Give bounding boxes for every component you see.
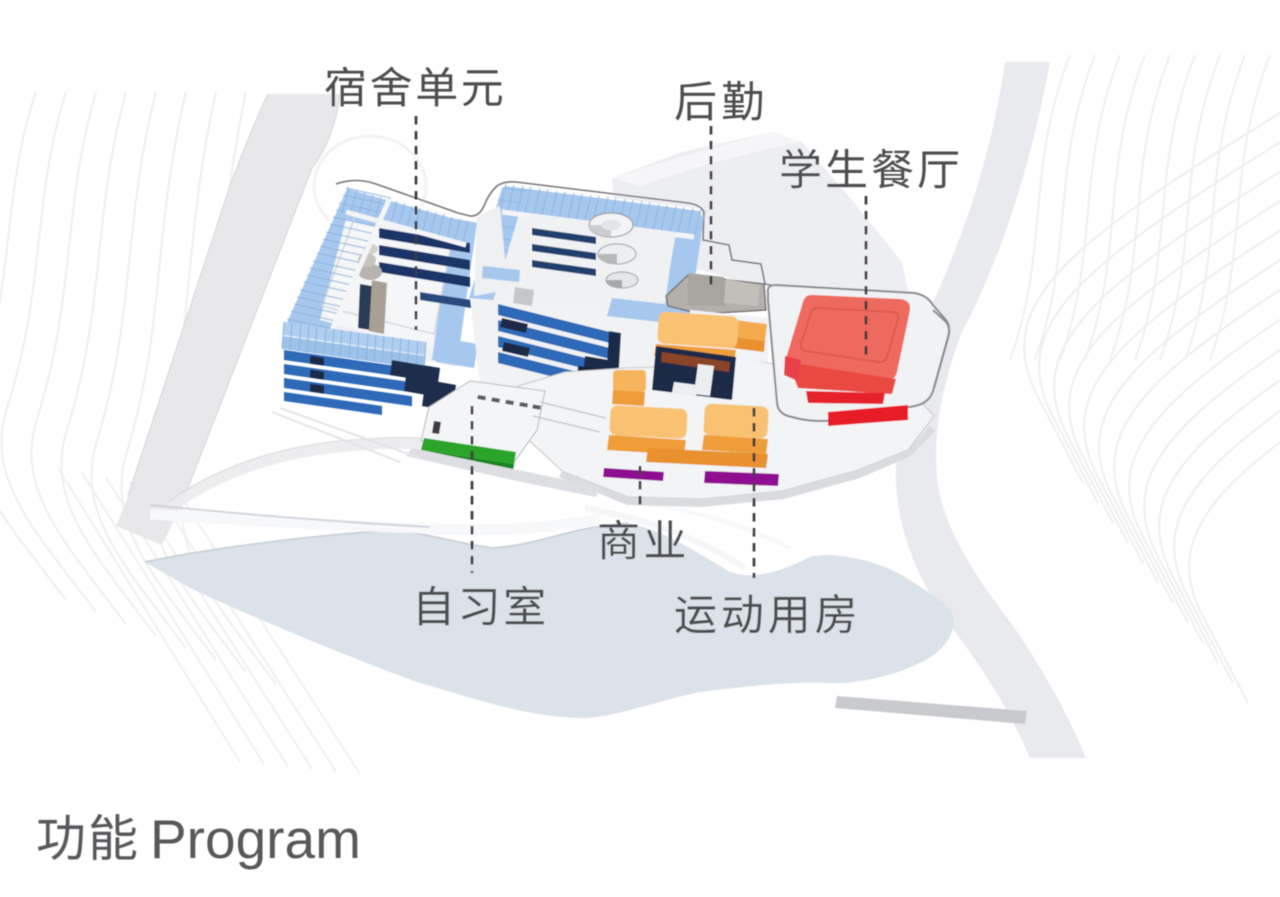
svg-text:Program: Program: [150, 808, 361, 870]
